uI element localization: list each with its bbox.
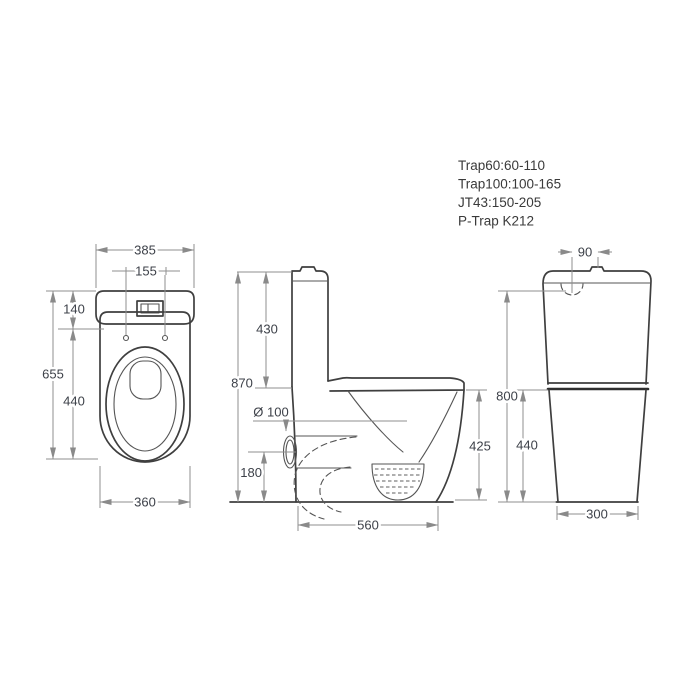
note-ptrap: P-Trap K212 [458, 214, 534, 229]
rear-view [498, 252, 651, 520]
side-view [230, 267, 487, 531]
side-trap-dashed-outer [294, 437, 356, 519]
plan-bowl-length-label: 440 [63, 394, 85, 409]
side-outlet-height-label: 180 [240, 465, 262, 480]
rear-body-right [637, 390, 646, 502]
note-trap60: Trap60:60-110 [458, 158, 545, 173]
rear-base-width-label: 300 [586, 507, 608, 522]
plan-hinge-hole-left [124, 336, 129, 341]
plan-hinge-hole-right [163, 336, 168, 341]
plan-seat-inner-ring [114, 357, 176, 451]
side-seat-height-label: 425 [469, 439, 491, 454]
rear-body-left [549, 390, 558, 502]
side-seat-lid [328, 378, 464, 391]
plan-hinge-spacing-label: 155 [135, 264, 157, 279]
plan-tank-outline [96, 291, 194, 324]
side-overall-depth-label: 560 [357, 518, 379, 533]
plan-base-width-label: 360 [134, 495, 156, 510]
technical-drawing-page: 385 155 140 655 440 360 430 870 Ø 100 18… [0, 0, 700, 700]
side-outlet-diameter-label: Ø 100 [253, 405, 288, 420]
side-bowl-interior-right [419, 392, 457, 462]
note-jt43: JT43:150-205 [458, 195, 541, 210]
plan-tank-depth-label: 140 [63, 302, 85, 317]
plan-tank-width-label: 385 [134, 243, 156, 258]
plan-water-spot [130, 361, 161, 399]
side-overall-height-label: 870 [231, 376, 253, 391]
rear-button-width-label: 90 [578, 245, 592, 260]
side-trap-dashed-inner [320, 467, 350, 512]
side-tank-outline [292, 267, 328, 387]
plan-overall-depth-label: 655 [42, 367, 64, 382]
plan-seat-outer-ring [106, 347, 184, 461]
plan-view [46, 244, 194, 508]
rear-lid-height-label: 800 [496, 389, 518, 404]
trap-notes: Trap60:60-110 Trap100:100-165 JT43:150-2… [458, 158, 561, 229]
toilet-dimension-drawing: 385 155 140 655 440 360 430 870 Ø 100 18… [0, 0, 700, 700]
side-tank-height-label: 430 [256, 322, 278, 337]
side-sump-outline [372, 464, 424, 500]
note-trap100: Trap100:100-165 [458, 177, 561, 192]
rear-seat-height-label: 440 [516, 438, 538, 453]
side-dim-outlet-diameter [253, 421, 407, 431]
side-water-hatching [374, 469, 422, 493]
rear-tank-outline [543, 267, 651, 384]
